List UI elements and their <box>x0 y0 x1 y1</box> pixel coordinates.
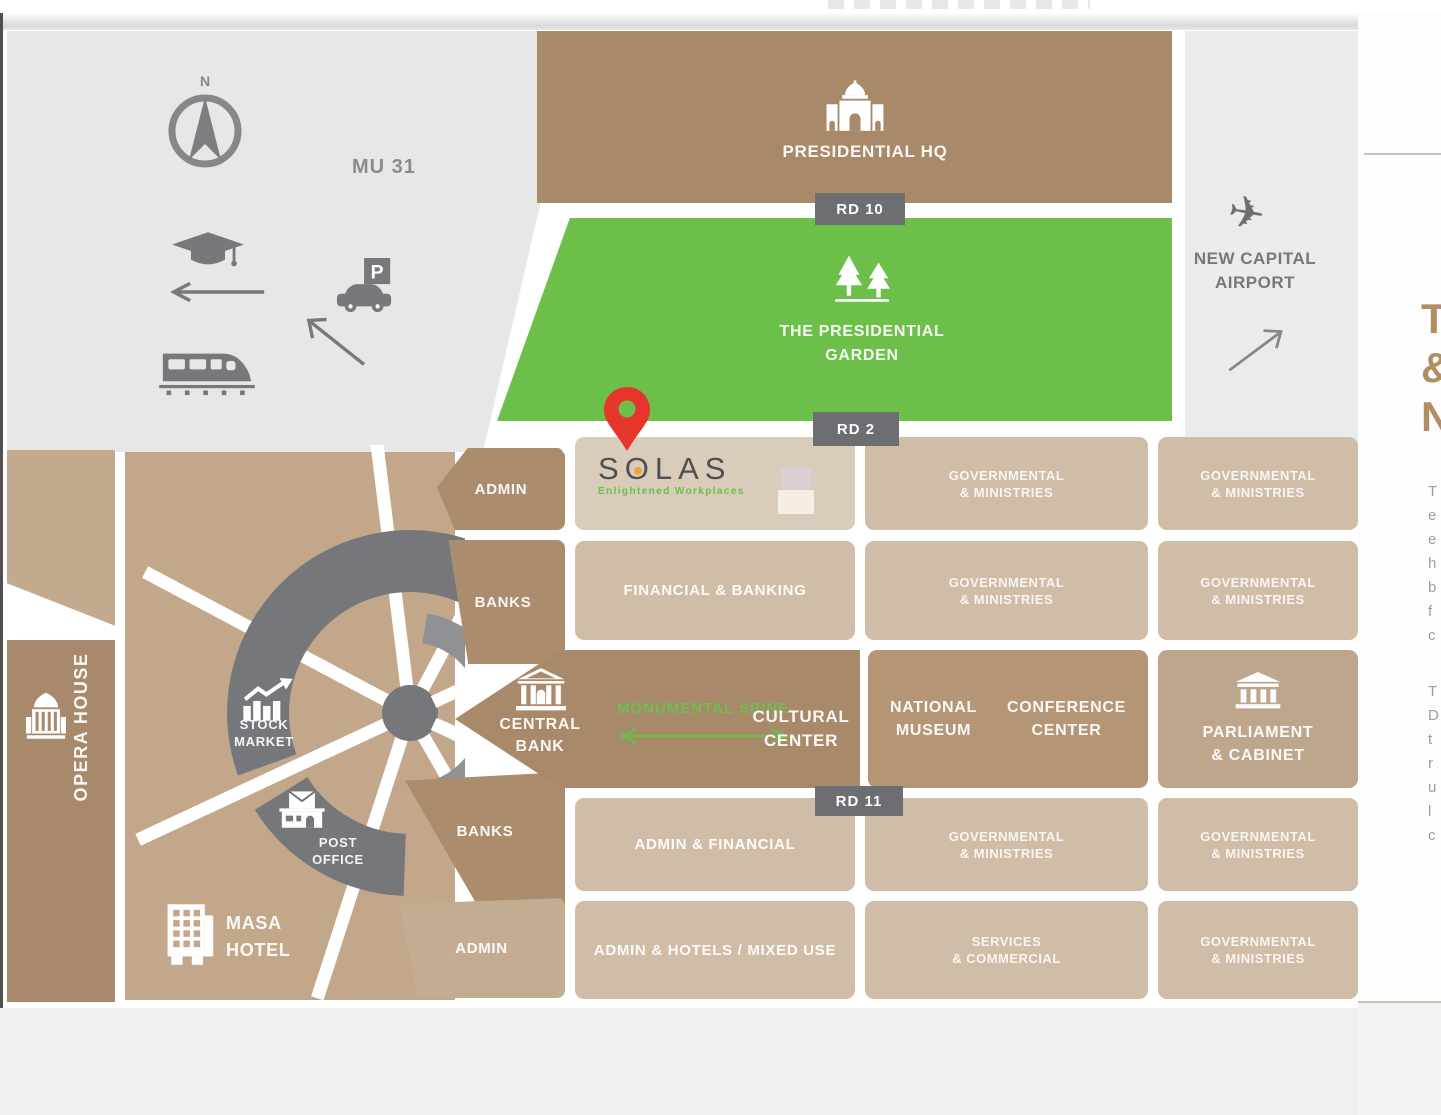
compass-north-letter: N <box>200 73 210 89</box>
arrow-left-icon <box>168 280 268 309</box>
cultural-center-label: CULTURAL CENTER <box>740 705 862 753</box>
block-gov-r4c2: GOVERNMENTAL & MINISTRIES <box>865 798 1148 891</box>
watermark-square-2 <box>778 490 814 514</box>
block-admin-2: ADMIN <box>398 898 565 998</box>
block-gov-r2c2: GOVERNMENTAL & MINISTRIES <box>865 541 1148 640</box>
central-bank-label: CENTRAL BANK <box>488 714 592 758</box>
post-office-label: POST OFFICE <box>301 834 375 868</box>
stock-market-label: STOCK MARKET <box>224 716 304 750</box>
slide-bottom-margin <box>0 1008 1358 1115</box>
hotel-icon <box>162 902 216 973</box>
presidential-hq-label: PRESIDENTIAL HQ <box>765 142 965 162</box>
sidebar-paragraph-2-fragment: T D t r u l c <box>1428 680 1441 848</box>
block-admin-hotels-mixed: ADMIN & HOTELS / MIXED USE <box>575 901 855 999</box>
compass-icon: N <box>160 72 250 181</box>
block-museum-conference: NATIONAL MUSEUM CONFERENCE CENTER <box>868 650 1148 788</box>
airport-direction-arrow-icon <box>1226 326 1288 379</box>
national-museum-label: NATIONAL MUSEUM <box>890 696 977 742</box>
garden-label: THE PRESIDENTIAL GARDEN <box>762 320 962 368</box>
train-icon <box>158 350 256 401</box>
post-office-icon <box>277 790 327 835</box>
trees-icon <box>828 252 896 308</box>
block-gov-r5c3: GOVERNMENTAL & MINISTRIES <box>1158 901 1358 999</box>
block-admin-financial: ADMIN & FINANCIAL <box>575 798 855 891</box>
legend-panel <box>7 31 540 452</box>
conference-center-label: CONFERENCE CENTER <box>1007 696 1126 742</box>
block-parliament: PARLIAMENT & CABINET <box>1158 650 1358 788</box>
svg-text:P: P <box>371 262 384 283</box>
block-gov-r2c3: GOVERNMENTAL & MINISTRIES <box>1158 541 1358 640</box>
cropped-top-text-fragment <box>828 0 1090 9</box>
slide-top-shadow <box>0 13 1358 31</box>
location-map-slide: PRESIDENTIAL HQ RD 10 THE PRESIDENTIAL G… <box>0 0 1441 1115</box>
sidebar-heading-fragment: T & N <box>1421 294 1441 441</box>
masa-hotel-label: MASA HOTEL <box>226 910 326 964</box>
parliament-label: PARLIAMENT & CABINET <box>1203 721 1314 767</box>
block-gov-r1c2: GOVERNMENTAL & MINISTRIES <box>865 437 1148 530</box>
arrow-upleft-icon <box>300 312 370 375</box>
solas-tagline: Enlightened Workplaces <box>598 486 745 497</box>
block-gov-r4c3: GOVERNMENTAL & MINISTRIES <box>1158 798 1358 891</box>
opera-house-icon <box>26 692 66 747</box>
parliament-icon <box>1234 672 1282 715</box>
zone-label: MU 31 <box>352 156 416 179</box>
sidebar-top-rule <box>1364 153 1441 155</box>
solas-wordmark: SOLAS <box>598 454 745 484</box>
solas-logo: SOLAS Enlightened Workplaces <box>598 454 745 497</box>
sidebar-paragraph-1-fragment: T e e h b f c <box>1428 480 1441 648</box>
road-badge-rd10: RD 10 <box>815 193 905 225</box>
palace-icon <box>822 80 888 134</box>
solas-dot-icon <box>634 467 642 475</box>
solas-location-pin-icon <box>602 386 652 457</box>
airport-label: NEW CAPITAL AIRPORT <box>1188 247 1322 295</box>
university-icon <box>172 232 244 281</box>
road-badge-rd11: RD 11 <box>815 786 903 816</box>
airport-panel <box>1185 31 1358 447</box>
road-badge-rd2: RD 2 <box>813 412 899 446</box>
opera-house-label: OPERA HOUSE <box>68 652 94 802</box>
block-gov-r1c3: GOVERNMENTAL & MINISTRIES <box>1158 437 1358 530</box>
central-bank-icon <box>516 668 566 718</box>
sidebar-bottom-area <box>1358 1003 1441 1115</box>
block-financial-banking: FINANCIAL & BANKING <box>575 541 855 640</box>
block-services-commercial: SERVICES & COMMERCIAL <box>865 901 1148 999</box>
